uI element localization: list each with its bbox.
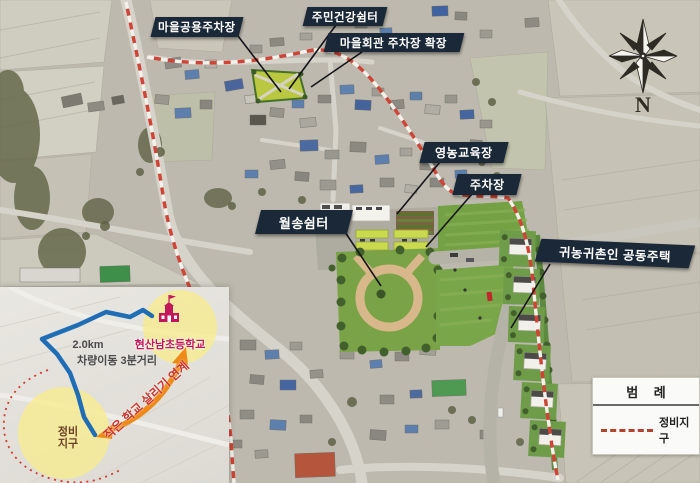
callout-label: 월송쉼터 xyxy=(279,213,329,232)
callout-resident-health-shelter: 주민건강쉼터 xyxy=(303,7,388,26)
school-link-inset-map: 현산남초등학교 2.0km 차량이동 3분거리 정비 지구 작은 학교 살리기 … xyxy=(0,287,229,483)
callout-village-hall-parking-expansion: 마을회관 주차장 확장 xyxy=(324,33,465,52)
red-dashed-line-symbol xyxy=(601,429,653,432)
callout-label: 주차장 xyxy=(470,176,505,193)
callout-farming-education-center: 영농교육장 xyxy=(419,142,508,163)
school-name-label: 현산남초등학교 xyxy=(135,336,206,352)
callout-label: 마을회관 주차장 확장 xyxy=(340,35,447,51)
park xyxy=(336,248,440,352)
callout-label: 마을공용주차장 xyxy=(158,19,236,35)
distance-value: 2.0km xyxy=(72,339,103,351)
compass-north-label: N xyxy=(635,92,651,117)
callout-village-public-parking: 마을공용주차장 xyxy=(151,17,244,37)
callout-parking-lot: 주차장 xyxy=(452,174,521,195)
legend-item-district: 정비지구 xyxy=(593,406,699,454)
callout-label: 영농교육장 xyxy=(435,144,493,161)
district-label: 정비 지구 xyxy=(58,426,78,450)
legend-title: 범 례 xyxy=(593,378,699,406)
inset-graphic xyxy=(0,287,229,483)
callout-label: 귀농귀촌인 공동주택 xyxy=(559,242,672,266)
callout-wolsong-shelter: 월송쉼터 xyxy=(255,210,353,234)
callout-label: 주민건강쉼터 xyxy=(312,9,378,25)
legend-box: 범 례 정비지구 xyxy=(592,377,700,455)
travel-time-label: 차량이동 3분거리 xyxy=(77,352,157,368)
aerial-masterplan-map: N 마을공용주차장 주민건강쉼터 마을회관 주차장 확장 영농교육장 주차장 월… xyxy=(0,0,700,483)
legend-item-label: 정비지구 xyxy=(659,414,693,446)
white-car xyxy=(498,408,503,417)
